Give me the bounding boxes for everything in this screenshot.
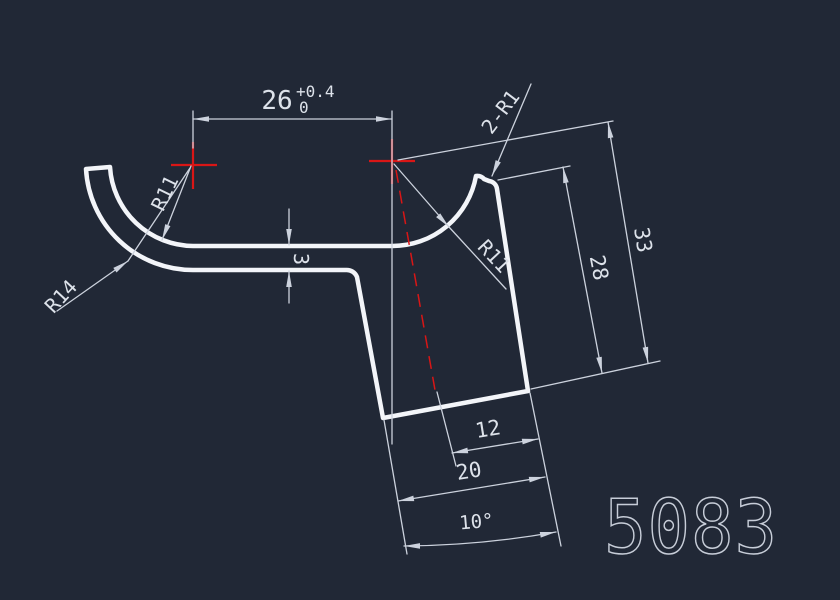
- part-number: 5083: [604, 483, 778, 571]
- dim-text-20: 20: [455, 457, 484, 485]
- ext-right-wall: [530, 393, 561, 546]
- dim-text-r14: R14: [40, 275, 82, 318]
- dim-text-28: 28: [585, 253, 613, 282]
- dim-text-33: 33: [629, 226, 657, 255]
- dim-text-2r1: 2-R1: [476, 85, 524, 138]
- dim-text-26: 26: [261, 86, 292, 116]
- ext-28-top: [498, 166, 570, 180]
- dim-text-r11-left: R11: [146, 171, 183, 214]
- cad-canvas: 26 +0.4 0 3 R11 R14 R11 2-R1 28 33 12 20…: [0, 0, 840, 600]
- dim-text-26-tol-minus: 0: [299, 98, 309, 117]
- drawing-viewport[interactable]: 26 +0.4 0 3 R11 R14 R11 2-R1 28 33 12 20…: [0, 0, 840, 600]
- ext-left-wall: [384, 420, 407, 554]
- dim-arc-10deg: [404, 532, 556, 546]
- dim-text-12: 12: [474, 415, 503, 443]
- dim-line-12: [452, 439, 538, 453]
- bend-axis-centerline: [396, 170, 435, 390]
- dim-text-3: 3: [289, 253, 313, 265]
- leader-r11-right-a: [394, 164, 449, 227]
- ext-bottom-shared: [531, 361, 660, 389]
- dim-text-10deg: 10°: [458, 510, 494, 535]
- ext-33-top: [398, 121, 613, 160]
